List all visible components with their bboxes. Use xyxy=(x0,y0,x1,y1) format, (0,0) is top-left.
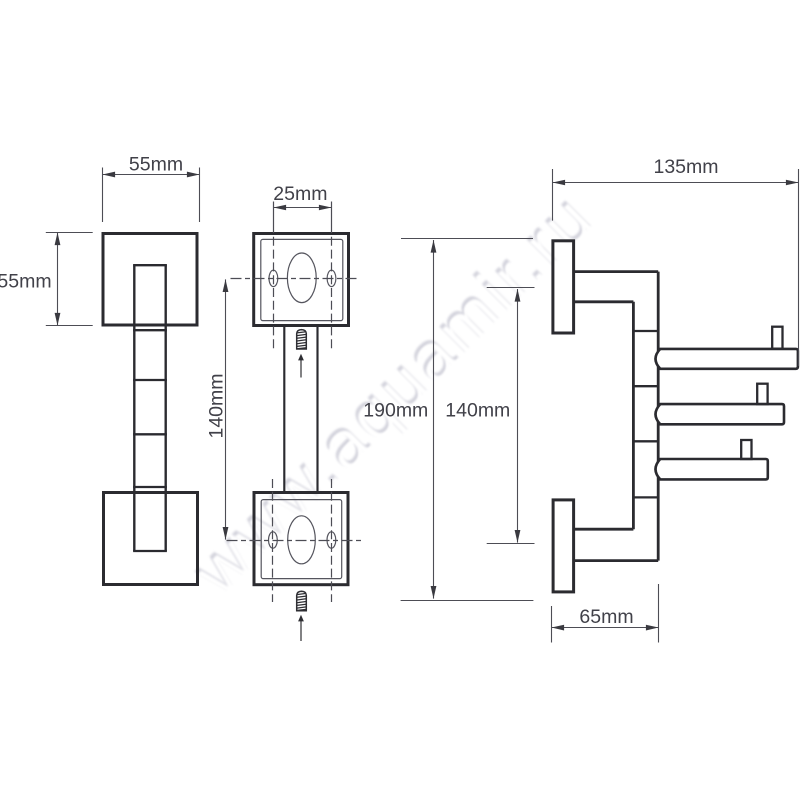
svg-text:140mm: 140mm xyxy=(445,400,510,422)
svg-text:135mm: 135mm xyxy=(653,156,718,178)
svg-text:65mm: 65mm xyxy=(579,606,633,628)
svg-text:25mm: 25mm xyxy=(273,183,327,205)
svg-text:140mm: 140mm xyxy=(205,373,227,438)
svg-text:190mm: 190mm xyxy=(363,400,428,422)
svg-text:55mm: 55mm xyxy=(0,270,52,292)
svg-text:55mm: 55mm xyxy=(129,154,183,176)
